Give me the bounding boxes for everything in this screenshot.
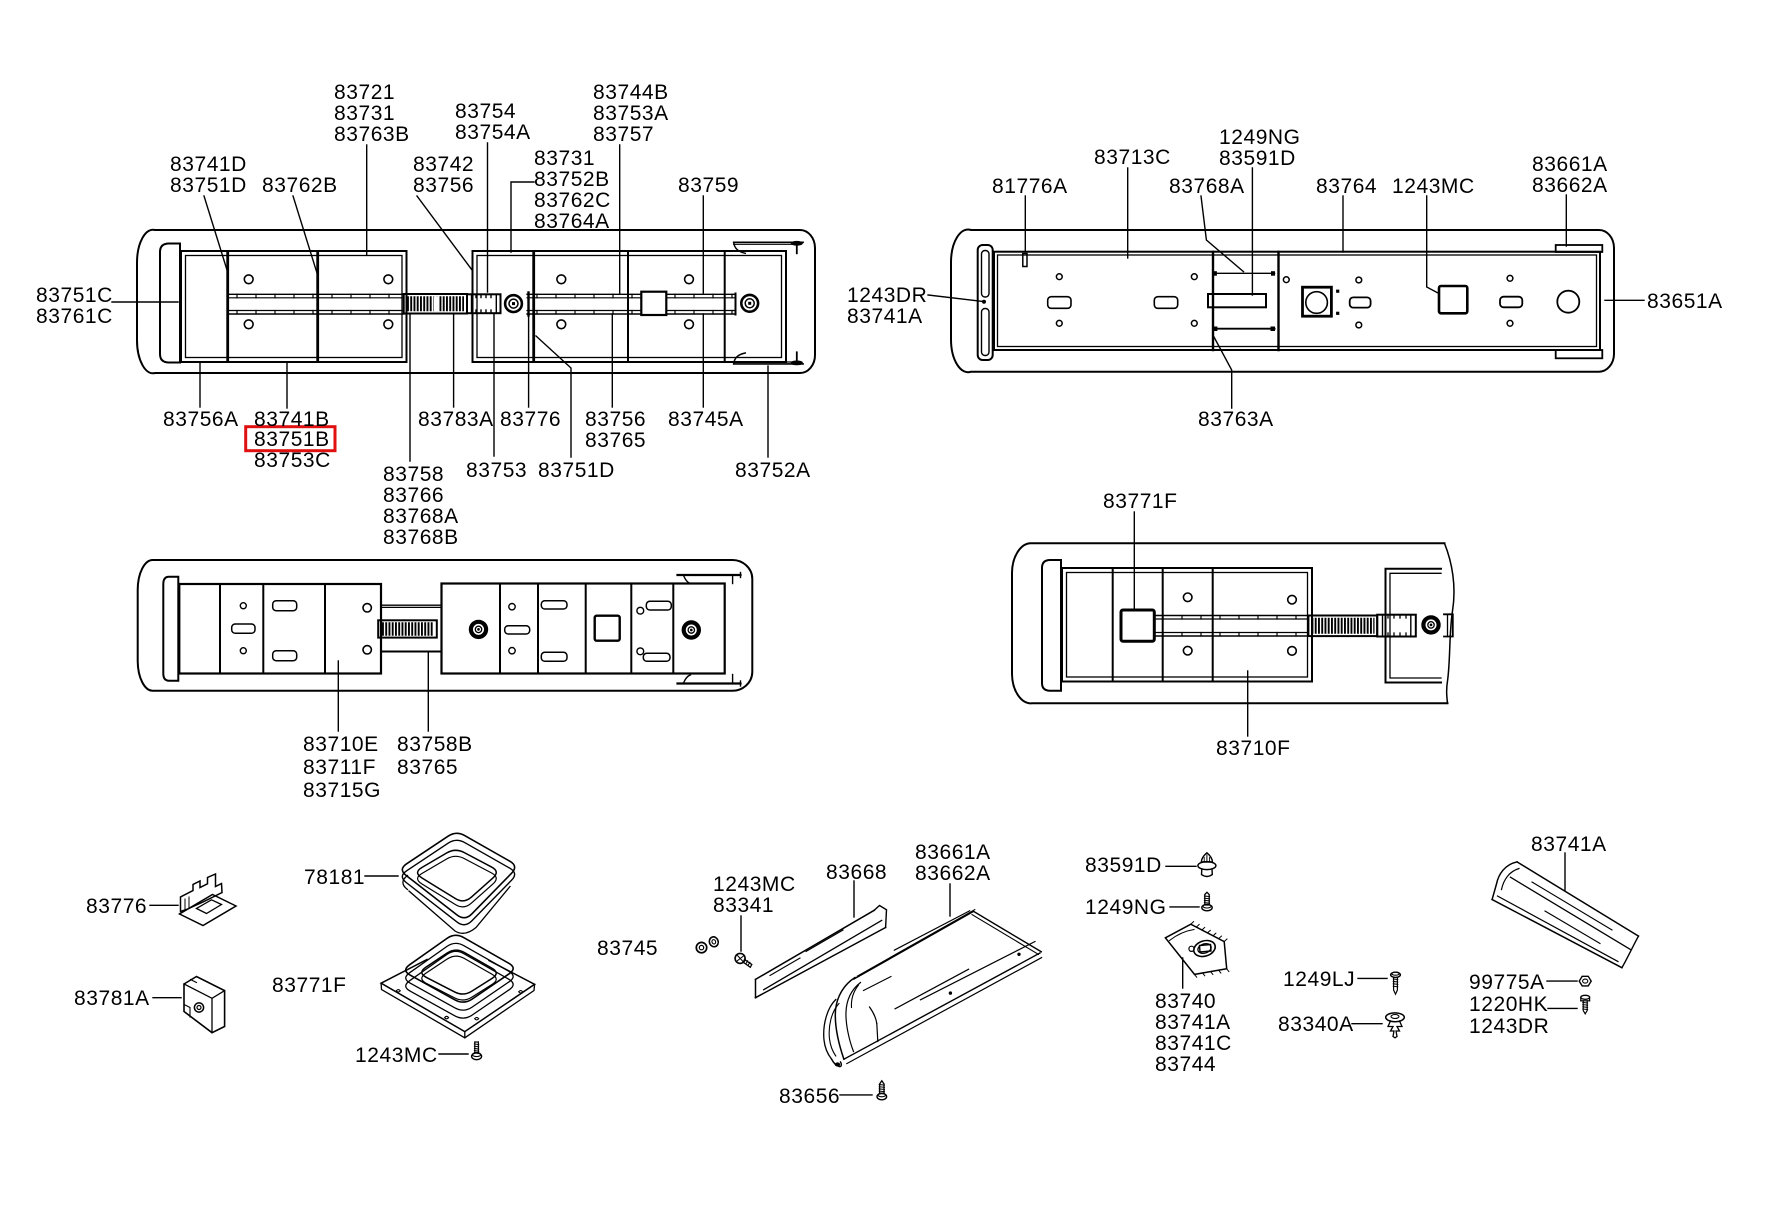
svg-text:1243MC: 1243MC xyxy=(713,873,796,896)
svg-text:1243DR: 1243DR xyxy=(847,284,927,307)
svg-text:83756: 83756 xyxy=(413,174,474,197)
svg-text:83742: 83742 xyxy=(413,153,474,176)
svg-text:83741A: 83741A xyxy=(847,305,923,328)
svg-text:83757: 83757 xyxy=(593,123,654,146)
svg-text:83651A: 83651A xyxy=(1647,290,1723,313)
svg-text:83753C: 83753C xyxy=(254,449,331,472)
svg-text:83752A: 83752A xyxy=(735,459,811,482)
svg-text:83661A: 83661A xyxy=(1532,153,1608,176)
svg-text:83591D: 83591D xyxy=(1085,854,1162,877)
svg-text:83762C: 83762C xyxy=(534,189,611,212)
svg-text:83764A: 83764A xyxy=(534,210,610,233)
svg-text:1249NG: 1249NG xyxy=(1085,896,1167,919)
svg-text:83662A: 83662A xyxy=(1532,174,1608,197)
svg-text:83741C: 83741C xyxy=(1155,1032,1232,1055)
svg-text:83340A: 83340A xyxy=(1278,1013,1354,1036)
svg-text:83776: 83776 xyxy=(86,895,147,918)
svg-text:83752B: 83752B xyxy=(534,168,610,191)
svg-text:83741D: 83741D xyxy=(170,153,247,176)
svg-text:83776: 83776 xyxy=(500,408,561,431)
svg-text:83763A: 83763A xyxy=(1198,408,1274,431)
svg-text:83715G: 83715G xyxy=(303,779,381,802)
svg-text:1243MC: 1243MC xyxy=(355,1044,438,1067)
svg-text:83783A: 83783A xyxy=(418,408,494,431)
svg-text:83744B: 83744B xyxy=(593,81,669,104)
svg-text:83741A: 83741A xyxy=(1531,833,1607,856)
svg-text:83751D: 83751D xyxy=(538,459,615,482)
svg-text:83661A: 83661A xyxy=(915,841,991,864)
svg-text:83662A: 83662A xyxy=(915,862,991,885)
svg-text:83753A: 83753A xyxy=(593,102,669,125)
svg-text:83754A: 83754A xyxy=(455,121,531,144)
svg-text:83656: 83656 xyxy=(779,1085,840,1108)
svg-text:83744: 83744 xyxy=(1155,1053,1216,1076)
svg-text:1243DR: 1243DR xyxy=(1469,1015,1549,1038)
svg-text:99775A: 99775A xyxy=(1469,971,1545,994)
svg-text:83756: 83756 xyxy=(585,408,646,431)
svg-text:83756A: 83756A xyxy=(163,408,239,431)
svg-text:83751C: 83751C xyxy=(36,284,113,307)
svg-text:83765: 83765 xyxy=(585,429,646,452)
svg-text:83711F: 83711F xyxy=(303,756,376,779)
svg-text:1243MC: 1243MC xyxy=(1392,175,1475,198)
svg-text:83761C: 83761C xyxy=(36,305,113,328)
svg-text:83763B: 83763B xyxy=(334,123,410,146)
svg-text:83768A: 83768A xyxy=(383,505,459,528)
svg-text:83751B: 83751B xyxy=(254,428,330,451)
svg-text:1220HK: 1220HK xyxy=(1469,993,1548,1016)
svg-text:83731: 83731 xyxy=(334,102,395,125)
svg-text:83710F: 83710F xyxy=(1216,737,1291,760)
svg-text:83710E: 83710E xyxy=(303,733,379,756)
svg-text:83771F: 83771F xyxy=(1103,490,1178,513)
svg-text:83731: 83731 xyxy=(534,147,595,170)
svg-text:83591D: 83591D xyxy=(1219,147,1296,170)
svg-text:1249NG: 1249NG xyxy=(1219,126,1301,149)
svg-text:83713C: 83713C xyxy=(1094,146,1171,169)
svg-text:83668: 83668 xyxy=(826,861,887,884)
svg-text:83341: 83341 xyxy=(713,894,774,917)
svg-text:1249LJ: 1249LJ xyxy=(1283,968,1355,991)
svg-text:83781A: 83781A xyxy=(74,987,150,1010)
svg-text:83754: 83754 xyxy=(455,100,516,123)
svg-text:83753: 83753 xyxy=(466,459,527,482)
svg-text:83745A: 83745A xyxy=(668,408,744,431)
svg-text:83745: 83745 xyxy=(597,937,658,960)
svg-text:83759: 83759 xyxy=(678,174,739,197)
svg-text:83766: 83766 xyxy=(383,484,444,507)
svg-text:83768B: 83768B xyxy=(383,526,459,549)
svg-text:83768A: 83768A xyxy=(1169,175,1245,198)
svg-text:83758: 83758 xyxy=(383,463,444,486)
svg-text:78181: 78181 xyxy=(304,866,365,889)
svg-text:83741A: 83741A xyxy=(1155,1011,1231,1034)
svg-text:81776A: 81776A xyxy=(992,175,1068,198)
svg-text:83762B: 83762B xyxy=(262,174,338,197)
svg-text:83764: 83764 xyxy=(1316,175,1377,198)
svg-text:83721: 83721 xyxy=(334,81,395,104)
svg-text:83758B: 83758B xyxy=(397,733,473,756)
svg-text:83765: 83765 xyxy=(397,756,458,779)
svg-text:83740: 83740 xyxy=(1155,990,1216,1013)
svg-text:83751D: 83751D xyxy=(170,174,247,197)
svg-text:83771F: 83771F xyxy=(272,974,347,997)
